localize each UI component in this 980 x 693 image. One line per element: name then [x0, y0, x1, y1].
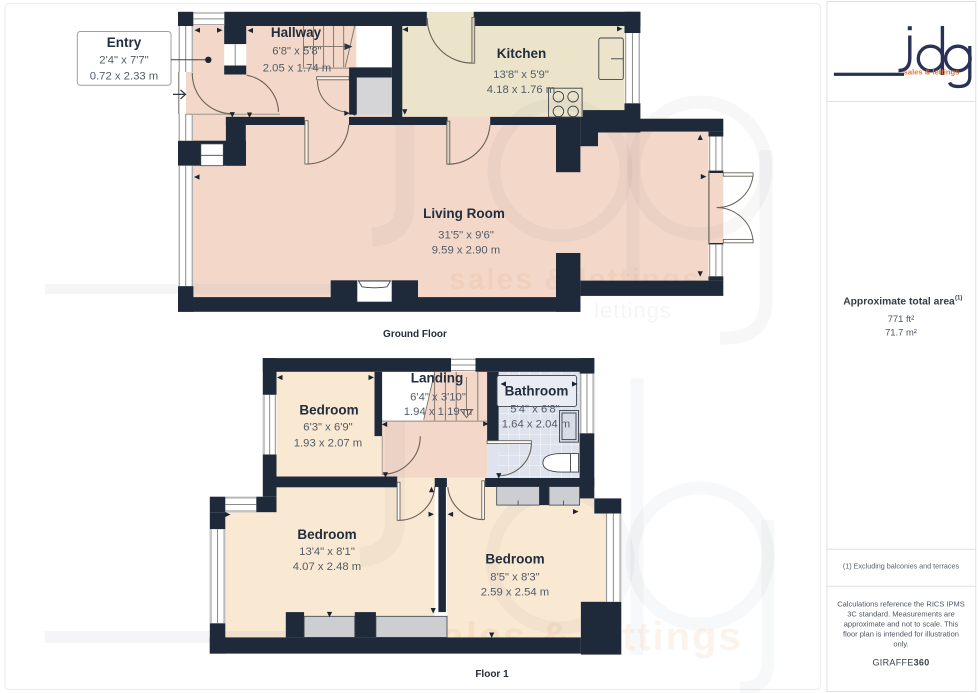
svg-text:9.59 x 2.90 m: 9.59 x 2.90 m	[432, 245, 500, 257]
svg-text:6'4" x 3'10": 6'4" x 3'10"	[410, 392, 466, 404]
svg-text:only.: only.	[893, 640, 908, 649]
svg-text:8'5" x 8'3": 8'5" x 8'3"	[490, 572, 539, 584]
svg-text:6'3" x 6'9": 6'3" x 6'9"	[303, 422, 352, 434]
svg-text:1.93 x 2.07 m: 1.93 x 2.07 m	[294, 438, 362, 450]
svg-text:Living Room: Living Room	[423, 206, 505, 221]
svg-text:771 ft²: 771 ft²	[888, 313, 915, 324]
svg-text:Approximate total area: Approximate total area	[843, 297, 955, 308]
svg-text:approximate and not to scale.: approximate and not to scale. This	[844, 620, 959, 629]
svg-text:Bedroom: Bedroom	[485, 552, 544, 567]
svg-text:2'4" x 7'7": 2'4" x 7'7"	[99, 55, 148, 67]
svg-text:Calculations reference the RIC: Calculations reference the RICS IPMS	[837, 600, 965, 609]
svg-text:71.7 m²: 71.7 m²	[885, 327, 917, 338]
svg-text:Bedroom: Bedroom	[297, 527, 356, 542]
svg-text:floor plan is intended for ill: floor plan is intended for illustration	[843, 630, 959, 639]
svg-text:13'8" x 5'9": 13'8" x 5'9"	[493, 69, 549, 81]
svg-text:Entry: Entry	[107, 35, 142, 50]
svg-text:Kitchen: Kitchen	[497, 46, 547, 61]
svg-text:sales & lettings: sales & lettings	[904, 67, 960, 76]
svg-text:4.18 x 1.76 m: 4.18 x 1.76 m	[487, 84, 555, 96]
svg-text:Ground Floor: Ground Floor	[383, 329, 447, 340]
svg-text:Hallway: Hallway	[271, 25, 322, 40]
svg-text:31'5" x 9'6": 31'5" x 9'6"	[438, 230, 494, 242]
svg-text:Bedroom: Bedroom	[299, 403, 358, 418]
svg-text:GIRAFFE360: GIRAFFE360	[872, 658, 929, 668]
svg-text:4.07 x 2.48 m: 4.07 x 2.48 m	[293, 561, 361, 573]
svg-text:6'8" x 5'8": 6'8" x 5'8"	[272, 46, 321, 58]
svg-text:5'4" x 6'8": 5'4" x 6'8"	[510, 404, 559, 416]
svg-text:Landing: Landing	[411, 371, 464, 386]
svg-text:Floor 1: Floor 1	[475, 669, 509, 680]
svg-text:2.59 x 2.54 m: 2.59 x 2.54 m	[481, 587, 549, 599]
svg-text:(1): (1)	[955, 296, 962, 302]
svg-text:(1) Excluding balconies and te: (1) Excluding balconies and terraces	[843, 562, 960, 571]
svg-text:1.94 x 1.19 m: 1.94 x 1.19 m	[404, 406, 472, 418]
svg-text:lettings: lettings	[594, 298, 672, 323]
svg-text:Bathroom: Bathroom	[505, 384, 569, 399]
svg-text:13'4" x 8'1": 13'4" x 8'1"	[299, 546, 355, 558]
svg-text:0.72 x 2.33 m: 0.72 x 2.33 m	[90, 71, 158, 83]
svg-text:2.05 x 1.74 m: 2.05 x 1.74 m	[263, 63, 331, 75]
svg-text:1.64 x 2.04 m: 1.64 x 2.04 m	[502, 419, 570, 431]
svg-text:3C standard. Measurements are: 3C standard. Measurements are	[847, 610, 955, 619]
